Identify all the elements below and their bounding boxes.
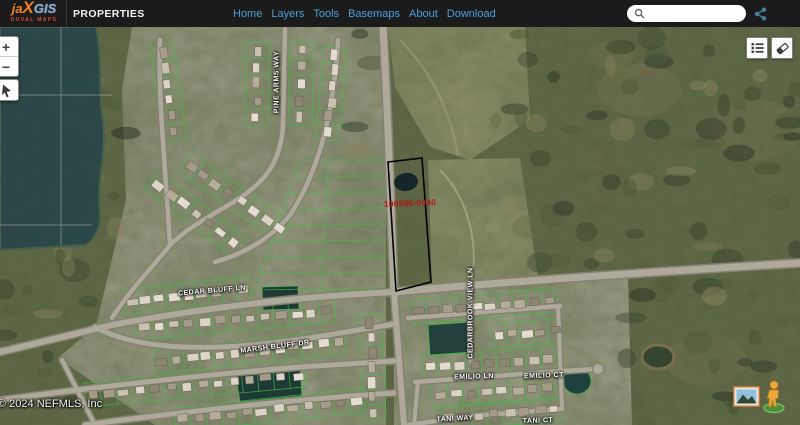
search-icon [634, 8, 645, 19]
share-icon[interactable] [754, 7, 767, 26]
street-label: PINE ARMS WAY [274, 51, 281, 113]
app-logo[interactable]: jaXGIS DUVAL MAPS [4, 1, 64, 27]
eraser-icon [775, 41, 790, 56]
legend-list-icon [751, 42, 764, 54]
header-divider [66, 0, 67, 27]
app-header: jaXGIS DUVAL MAPS PROPERTIES Home Layers… [0, 0, 800, 27]
page-title: PROPERTIES [73, 8, 145, 20]
nav-download[interactable]: Download [447, 8, 496, 20]
aerial-imagery [0, 27, 800, 425]
street-view-pegman[interactable] [762, 378, 786, 414]
main-nav: Home Layers Tools Basemaps About Downloa… [233, 0, 496, 27]
map-attribution: © 2024 NEFMLS, Inc [0, 398, 102, 410]
nav-basemaps[interactable]: Basemaps [348, 8, 400, 20]
cursor-arrow-icon [0, 83, 13, 98]
basemap-photo-icon [733, 394, 760, 411]
map-canvas[interactable]: PINE ARMS WAY CEDAR BLUFF LN MARSH BLUFF… [0, 27, 800, 425]
zoom-control: + − [0, 36, 19, 77]
nav-layers[interactable]: Layers [271, 8, 304, 20]
search-input[interactable] [649, 7, 739, 20]
street-label: TANI CT [523, 417, 554, 425]
nav-home[interactable]: Home [233, 8, 262, 20]
street-label: CEDARBROOK VIEW LN [468, 267, 475, 358]
nav-tools[interactable]: Tools [313, 8, 339, 20]
legend-button[interactable] [746, 37, 768, 59]
zoom-out-button[interactable]: − [0, 57, 18, 76]
jaxgis-app: jaXGIS DUVAL MAPS PROPERTIES Home Layers… [0, 0, 800, 425]
basemap-toggle-button[interactable] [733, 386, 760, 407]
eraser-button[interactable] [771, 37, 793, 59]
logo-subtitle: DUVAL MAPS [4, 14, 64, 27]
pegman-icon [762, 401, 786, 418]
nav-about[interactable]: About [409, 8, 438, 20]
street-label: EMILIO CT [524, 372, 564, 380]
map-toolbar [746, 37, 793, 59]
zoom-in-button[interactable]: + [0, 37, 18, 57]
street-label: EMILIO LN [454, 373, 494, 381]
parcel-id-label: 106586-0040 [384, 197, 437, 209]
search-box [627, 5, 746, 22]
pointer-tool-button[interactable] [0, 79, 19, 101]
